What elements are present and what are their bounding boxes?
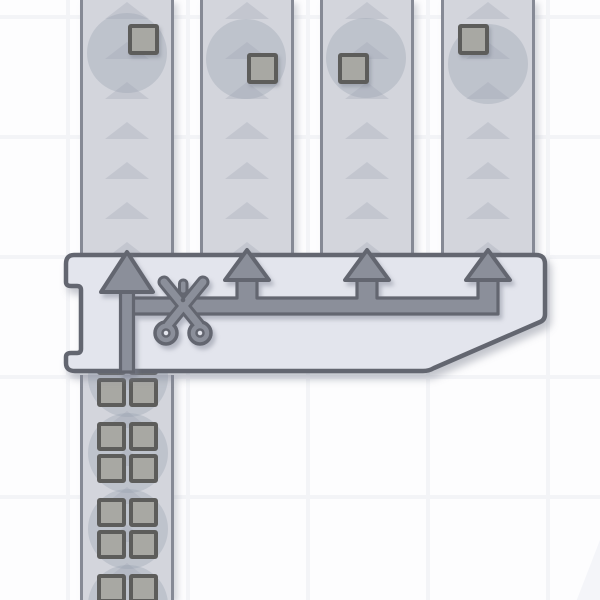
- quad-cutter-machine[interactable]: [0, 0, 600, 600]
- game-viewport: [0, 0, 600, 600]
- input-arrow: [121, 292, 134, 372]
